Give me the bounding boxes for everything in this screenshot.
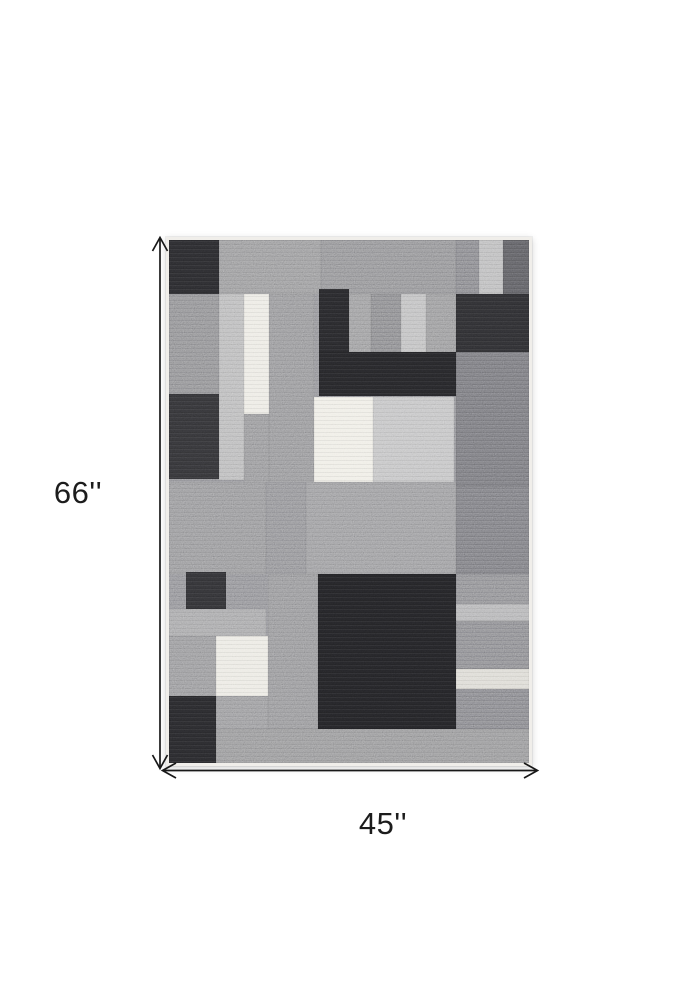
rug-block <box>373 397 454 482</box>
rug-block <box>401 294 426 352</box>
rug-block <box>456 240 479 294</box>
rug-surface <box>169 240 529 763</box>
rug-block <box>479 240 503 294</box>
rug-block <box>169 240 219 294</box>
rug-block <box>456 486 529 574</box>
rug-block <box>306 482 456 574</box>
rug-block <box>321 240 456 294</box>
rug-block <box>169 294 219 394</box>
height-dimension-label: 66'' <box>43 477 113 508</box>
rug-block <box>456 352 529 486</box>
rug-block <box>169 696 216 763</box>
rug-block <box>216 696 268 729</box>
rug-block <box>169 636 216 696</box>
rug-block <box>371 294 401 352</box>
rug-block <box>169 482 266 574</box>
product-dimension-figure: 66'' 45'' <box>0 0 698 1000</box>
rug-block <box>244 294 269 414</box>
rug-block <box>268 574 318 729</box>
rug-block <box>456 294 529 352</box>
rug-block <box>456 574 529 604</box>
rug-block <box>186 572 226 609</box>
rug-block <box>426 294 456 352</box>
rug-block <box>266 482 306 574</box>
rug-block-pattern <box>169 240 529 763</box>
rug-image <box>166 237 532 766</box>
rug-block <box>456 621 529 669</box>
rug-block <box>219 294 244 480</box>
rug-block <box>319 352 456 396</box>
rug-block <box>244 414 269 486</box>
rug-block <box>169 609 266 636</box>
rug-block <box>314 397 373 482</box>
rug-block <box>216 636 268 696</box>
width-dimension-label: 45'' <box>348 808 418 839</box>
rug-block <box>318 574 456 729</box>
rug-block <box>456 604 529 621</box>
rug-block <box>456 669 529 689</box>
rug-block <box>503 240 529 294</box>
rug-block <box>456 689 529 729</box>
rug-block <box>219 240 321 294</box>
rug-block <box>349 294 371 352</box>
rug-block <box>216 729 529 763</box>
rug-block <box>319 289 349 352</box>
rug-block <box>169 394 219 479</box>
rug-block <box>269 294 314 486</box>
